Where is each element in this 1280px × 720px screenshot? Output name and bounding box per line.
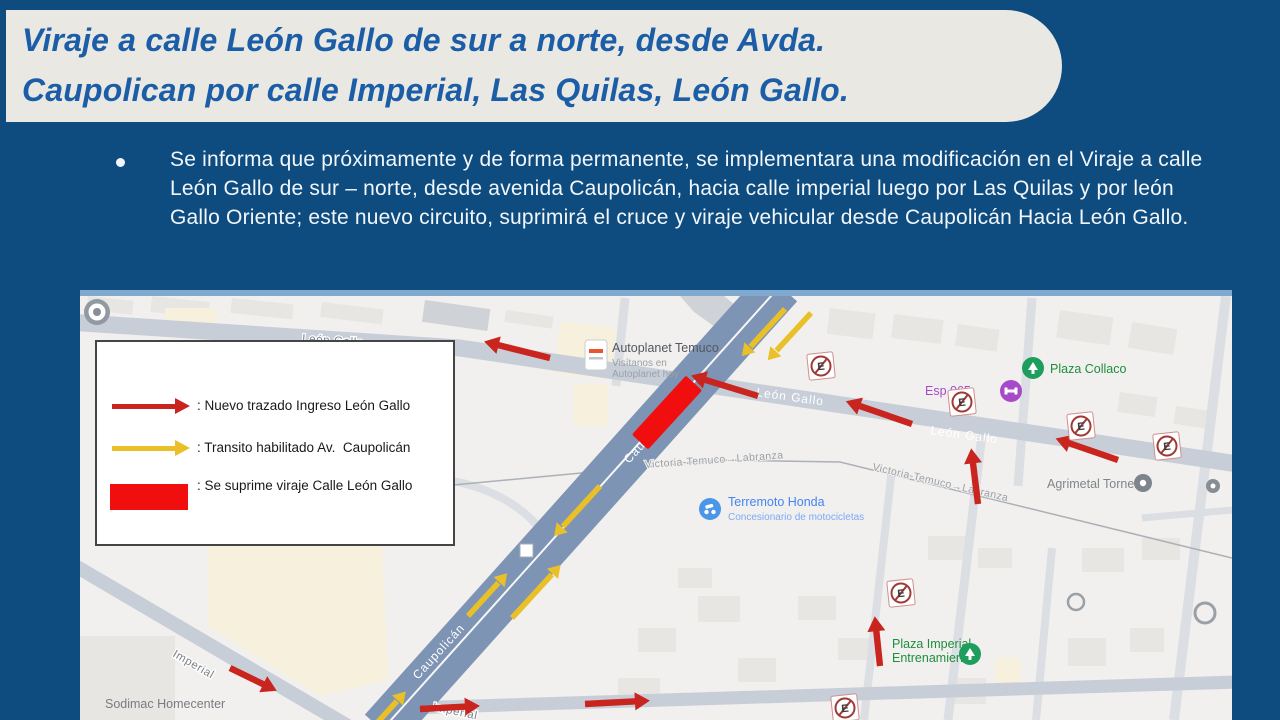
- transit-stop-icon: [1134, 474, 1152, 492]
- no-parking-sign: E: [887, 579, 916, 608]
- red-arrow-icon: [112, 404, 176, 409]
- svg-text:E: E: [897, 588, 906, 601]
- red-block-icon: [110, 484, 188, 510]
- header-banner: Viraje a calle León Gallo de sur a norte…: [6, 10, 1062, 122]
- no-parking-sign: E: [831, 694, 860, 720]
- map-legend: : Nuevo trazado Ingreso León Gallo : Tra…: [95, 340, 455, 546]
- bullet-point: [116, 158, 125, 167]
- no-parking-sign: E: [1067, 412, 1096, 441]
- legend-label: : Se suprime viraje Calle León Gallo: [197, 478, 412, 493]
- circle-marker: [1195, 603, 1215, 623]
- poi-plaza-collaco: Plaza Collaco: [1050, 362, 1126, 376]
- park-icon-plaza-collaco: [1022, 357, 1044, 379]
- poi-autoplanet-title: Autoplanet Temuco: [612, 341, 719, 355]
- terremoto-honda-icon: [699, 498, 721, 520]
- header-line-2: Caupolican por calle Imperial, Las Quila…: [22, 72, 849, 109]
- victoria-rail-line: [378, 460, 1232, 558]
- legend-label: : Nuevo trazado Ingreso León Gallo: [197, 398, 410, 413]
- svg-text:E: E: [841, 703, 850, 716]
- street-label-imperial-west: Imperial: [171, 648, 217, 681]
- legend-row-enabled-transit: : Transito habilitado Av. Caupolicán: [97, 436, 453, 462]
- poi-sodimac: Sodimac Homecenter: [105, 697, 225, 711]
- svg-text:E: E: [958, 397, 967, 410]
- poi-agrimetal: Agrimetal Tornería: [1047, 477, 1149, 491]
- park-icon-plaza-imperial: [959, 643, 981, 665]
- no-parking-sign: E: [807, 352, 836, 381]
- header-line-1: Viraje a calle León Gallo de sur a norte…: [22, 22, 825, 59]
- flyer-background: Viraje a calle León Gallo de sur a norte…: [0, 0, 1280, 720]
- svg-text:E: E: [1077, 421, 1086, 434]
- road-imperial-east: [410, 682, 1232, 708]
- no-parking-sign: E: [1153, 432, 1182, 461]
- poi-autoplanet-sub1: Visítanos en: [612, 358, 667, 369]
- no-parking-sign: E: [948, 388, 977, 417]
- map-location-control-icon: [84, 299, 110, 325]
- map-screenshot: León Gallo León Gallo León Gallo Caupoli…: [80, 296, 1232, 720]
- autoplanet-store-icon: [585, 340, 607, 370]
- minor-street: [1142, 510, 1232, 518]
- poi-autoplanet-sub2: Autoplanet hoy: [612, 369, 679, 380]
- svg-text:E: E: [1163, 441, 1172, 454]
- small-marker-box: [520, 544, 533, 557]
- poi-terremoto-title: Terremoto Honda: [728, 495, 825, 509]
- label-victoria-line-1: Victoria-Temuco→Labranza: [644, 449, 783, 471]
- poi-terremoto-sub: Concesionario de motocicletas: [728, 512, 864, 523]
- poi-plaza-imperial-1: Plaza Imperial: [892, 637, 971, 651]
- purple-poi-icon: [1000, 380, 1022, 402]
- street-las-quilas: [948, 426, 983, 720]
- transit-stop-icon: [1206, 479, 1220, 493]
- announcement-text: Se informa que próximamente y de forma p…: [170, 145, 1210, 232]
- yellow-arrow-icon: [112, 446, 176, 451]
- svg-text:E: E: [817, 361, 826, 374]
- legend-row-new-route: : Nuevo trazado Ingreso León Gallo: [97, 394, 453, 420]
- circle-marker: [1068, 594, 1084, 610]
- legend-label: : Transito habilitado Av. Caupolicán: [197, 440, 410, 455]
